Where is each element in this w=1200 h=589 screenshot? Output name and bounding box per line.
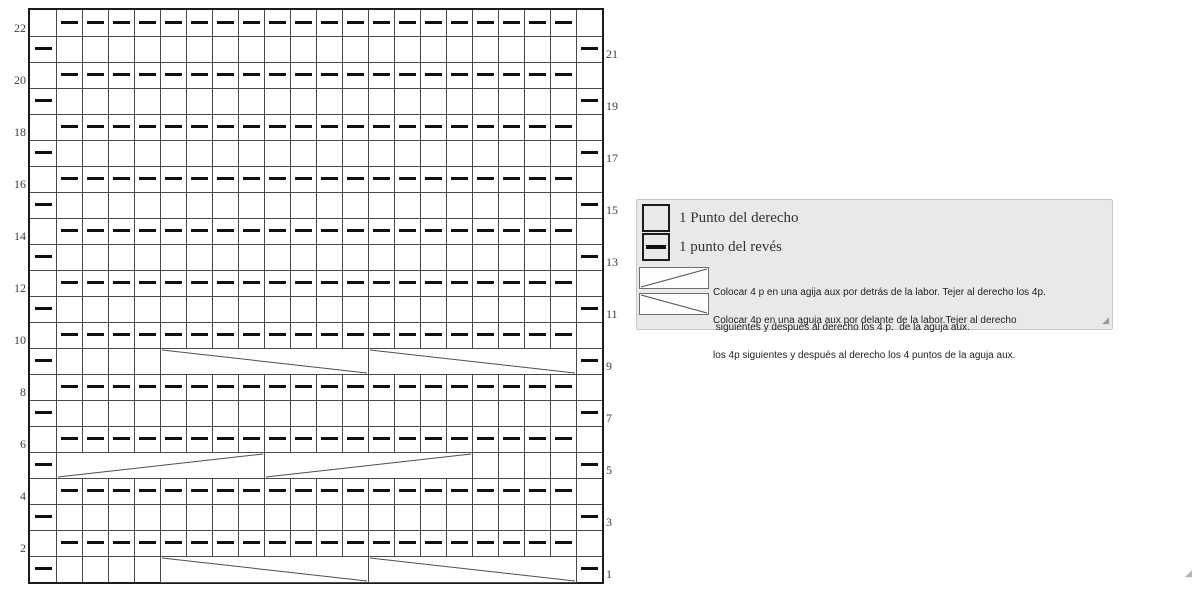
purl-dash — [35, 515, 52, 518]
purl-dash — [139, 541, 156, 544]
row-label-right: 9 — [606, 360, 628, 373]
purl-dash — [373, 281, 390, 284]
purl-dash — [451, 541, 468, 544]
purl-dash — [35, 411, 52, 414]
purl-dash — [555, 125, 572, 128]
purl-dash — [295, 125, 312, 128]
purl-dash — [139, 489, 156, 492]
purl-dash — [139, 281, 156, 284]
purl-dash — [61, 489, 78, 492]
purl-dash — [451, 333, 468, 336]
purl-dash — [451, 281, 468, 284]
purl-dash — [321, 489, 338, 492]
purl-dash — [503, 281, 520, 284]
purl-dash — [347, 125, 364, 128]
purl-dash — [87, 21, 104, 24]
purl-dash — [113, 437, 130, 440]
legend-panel: 1 Punto del derecho 1 punto del revés Co… — [636, 199, 1113, 330]
purl-dash — [555, 385, 572, 388]
row-label-left: 10 — [4, 334, 26, 347]
purl-dash — [399, 541, 416, 544]
purl-dash — [321, 385, 338, 388]
purl-dash — [425, 437, 442, 440]
purl-dash — [243, 281, 260, 284]
purl-dash — [529, 21, 546, 24]
legend-cable-front-line1: Colocar 4p en una aguja aux por delante … — [713, 315, 1017, 327]
purl-dash — [139, 333, 156, 336]
purl-dash — [581, 255, 598, 258]
knit-stitch-icon — [642, 204, 670, 232]
purl-dash — [113, 229, 130, 232]
purl-dash — [477, 437, 494, 440]
purl-dash — [451, 385, 468, 388]
purl-dash — [399, 489, 416, 492]
grid-line-horizontal — [30, 400, 602, 401]
row-label-left: 22 — [4, 22, 26, 35]
purl-dash — [477, 229, 494, 232]
purl-dash — [373, 125, 390, 128]
row-label-left: 18 — [4, 126, 26, 139]
purl-dash — [269, 437, 286, 440]
purl-dash — [425, 21, 442, 24]
purl-dash — [373, 541, 390, 544]
purl-dash — [425, 489, 442, 492]
purl-dash — [425, 281, 442, 284]
purl-dash — [425, 229, 442, 232]
purl-dash — [243, 437, 260, 440]
purl-dash — [477, 177, 494, 180]
purl-dash — [581, 151, 598, 154]
purl-dash — [139, 437, 156, 440]
purl-dash — [347, 229, 364, 232]
purl-dash — [35, 463, 52, 466]
purl-dash — [217, 541, 234, 544]
purl-dash — [295, 177, 312, 180]
purl-dash — [399, 437, 416, 440]
purl-dash — [555, 281, 572, 284]
purl-dash — [529, 437, 546, 440]
purl-dash — [61, 385, 78, 388]
purl-dash — [581, 99, 598, 102]
purl-dash — [269, 177, 286, 180]
purl-dash — [581, 515, 598, 518]
purl-dash — [477, 541, 494, 544]
purl-dash — [243, 333, 260, 336]
purl-dash — [139, 21, 156, 24]
purl-dash — [191, 437, 208, 440]
purl-dash — [87, 125, 104, 128]
grid-line-horizontal — [30, 270, 602, 271]
legend-knit-label: 1 Punto del derecho — [679, 204, 799, 232]
purl-dash — [269, 385, 286, 388]
purl-dash — [321, 177, 338, 180]
purl-dash — [295, 229, 312, 232]
purl-dash — [61, 437, 78, 440]
purl-dash — [373, 385, 390, 388]
purl-dash — [399, 229, 416, 232]
purl-dash — [347, 281, 364, 284]
purl-dash — [165, 21, 182, 24]
purl-dash — [477, 489, 494, 492]
purl-dash — [35, 255, 52, 258]
purl-dash — [477, 385, 494, 388]
purl-dash — [321, 229, 338, 232]
purl-dash — [503, 437, 520, 440]
purl-dash — [451, 73, 468, 76]
purl-dash — [555, 541, 572, 544]
purl-dash — [373, 229, 390, 232]
purl-dash — [477, 125, 494, 128]
purl-dash — [503, 333, 520, 336]
purl-dash — [477, 333, 494, 336]
purl-dash — [503, 229, 520, 232]
purl-dash — [139, 229, 156, 232]
grid-line-horizontal — [30, 426, 602, 427]
row-label-left: 8 — [4, 386, 26, 399]
purl-dash — [399, 21, 416, 24]
purl-dash — [321, 333, 338, 336]
purl-dash — [529, 125, 546, 128]
purl-dash — [399, 125, 416, 128]
knitting-chart-grid — [28, 8, 604, 584]
purl-dash — [61, 73, 78, 76]
purl-dash — [399, 281, 416, 284]
purl-dash — [555, 333, 572, 336]
purl-dash — [451, 177, 468, 180]
cable-front-symbol — [368, 556, 577, 583]
purl-dash — [243, 489, 260, 492]
purl-dash — [503, 125, 520, 128]
grid-line-horizontal — [30, 88, 602, 89]
purl-dash — [373, 489, 390, 492]
purl-dash — [243, 177, 260, 180]
purl-dash — [425, 541, 442, 544]
purl-dash — [191, 73, 208, 76]
purl-dash — [451, 229, 468, 232]
purl-dash — [581, 203, 598, 206]
purl-dash — [217, 73, 234, 76]
purl-dash — [113, 177, 130, 180]
purl-dash — [243, 21, 260, 24]
purl-dash — [113, 125, 130, 128]
purl-stitch-icon — [642, 233, 670, 261]
cable-front-symbol — [160, 556, 369, 583]
purl-dash — [269, 21, 286, 24]
purl-dash — [217, 125, 234, 128]
row-label-left: 16 — [4, 178, 26, 191]
purl-dash — [399, 177, 416, 180]
row-label-right: 15 — [606, 204, 628, 217]
purl-dash — [321, 125, 338, 128]
purl-dash — [529, 229, 546, 232]
purl-dash — [295, 541, 312, 544]
purl-dash — [139, 73, 156, 76]
purl-dash — [646, 245, 666, 249]
purl-dash — [477, 21, 494, 24]
purl-dash — [321, 541, 338, 544]
purl-dash — [347, 333, 364, 336]
knitting-chart: 22201816141210864221191715131197531 — [0, 0, 630, 589]
purl-dash — [191, 333, 208, 336]
row-label-right: 1 — [606, 568, 628, 581]
purl-dash — [295, 489, 312, 492]
purl-dash — [529, 541, 546, 544]
row-label-left: 20 — [4, 74, 26, 87]
cable-front-icon — [639, 293, 709, 315]
purl-dash — [529, 489, 546, 492]
purl-dash — [451, 125, 468, 128]
purl-dash — [87, 229, 104, 232]
purl-dash — [61, 541, 78, 544]
purl-dash — [165, 229, 182, 232]
purl-dash — [191, 125, 208, 128]
purl-dash — [529, 385, 546, 388]
purl-dash — [243, 125, 260, 128]
row-label-left: 2 — [4, 542, 26, 555]
purl-dash — [191, 177, 208, 180]
purl-dash — [581, 47, 598, 50]
purl-dash — [451, 21, 468, 24]
purl-dash — [165, 177, 182, 180]
purl-dash — [165, 437, 182, 440]
purl-dash — [451, 437, 468, 440]
purl-dash — [61, 21, 78, 24]
grid-line-horizontal — [30, 504, 602, 505]
purl-dash — [165, 541, 182, 544]
purl-dash — [555, 73, 572, 76]
purl-dash — [35, 203, 52, 206]
purl-dash — [217, 489, 234, 492]
purl-dash — [503, 73, 520, 76]
purl-dash — [113, 333, 130, 336]
purl-dash — [425, 333, 442, 336]
purl-dash — [269, 489, 286, 492]
purl-dash — [529, 281, 546, 284]
row-label-right: 5 — [606, 464, 628, 477]
legend-purl-label: 1 punto del revés — [679, 233, 782, 261]
purl-dash — [61, 333, 78, 336]
purl-dash — [269, 229, 286, 232]
purl-dash — [191, 229, 208, 232]
purl-dash — [347, 73, 364, 76]
purl-dash — [529, 177, 546, 180]
row-label-right: 11 — [606, 308, 628, 321]
purl-dash — [217, 385, 234, 388]
purl-dash — [425, 385, 442, 388]
purl-dash — [529, 73, 546, 76]
purl-dash — [243, 73, 260, 76]
purl-dash — [191, 489, 208, 492]
grid-line-horizontal — [30, 36, 602, 37]
grid-line-horizontal — [30, 192, 602, 193]
purl-dash — [243, 385, 260, 388]
purl-dash — [165, 125, 182, 128]
purl-dash — [399, 385, 416, 388]
purl-dash — [113, 21, 130, 24]
purl-dash — [165, 385, 182, 388]
purl-dash — [165, 73, 182, 76]
purl-dash — [581, 411, 598, 414]
purl-dash — [87, 177, 104, 180]
row-label-right: 17 — [606, 152, 628, 165]
row-label-left: 6 — [4, 438, 26, 451]
purl-dash — [217, 437, 234, 440]
purl-dash — [35, 359, 52, 362]
purl-dash — [243, 541, 260, 544]
purl-dash — [347, 177, 364, 180]
purl-dash — [477, 73, 494, 76]
purl-dash — [503, 541, 520, 544]
purl-dash — [269, 333, 286, 336]
row-label-right: 3 — [606, 516, 628, 529]
purl-dash — [529, 333, 546, 336]
purl-dash — [35, 307, 52, 310]
purl-dash — [217, 281, 234, 284]
purl-dash — [35, 151, 52, 154]
purl-dash — [217, 229, 234, 232]
purl-dash — [555, 437, 572, 440]
purl-dash — [61, 125, 78, 128]
purl-dash — [373, 437, 390, 440]
purl-dash — [295, 333, 312, 336]
purl-dash — [191, 281, 208, 284]
purl-dash — [399, 73, 416, 76]
purl-dash — [503, 385, 520, 388]
cable-front-symbol — [160, 348, 369, 375]
purl-dash — [373, 21, 390, 24]
purl-dash — [269, 73, 286, 76]
page-resize-grip-icon[interactable]: ◢ — [1185, 570, 1192, 579]
purl-dash — [503, 489, 520, 492]
grid-line-horizontal — [30, 322, 602, 323]
cable-back-icon — [639, 267, 709, 289]
row-label-left: 4 — [4, 490, 26, 503]
purl-dash — [269, 125, 286, 128]
purl-dash — [165, 333, 182, 336]
legend-cable-front-text: Colocar 4p en una aguja aux por delante … — [713, 292, 1017, 384]
purl-dash — [451, 489, 468, 492]
purl-dash — [425, 125, 442, 128]
purl-dash — [399, 333, 416, 336]
purl-dash — [113, 541, 130, 544]
purl-dash — [191, 21, 208, 24]
purl-dash — [477, 281, 494, 284]
cable-back-symbol — [264, 452, 473, 479]
cable-front-symbol — [368, 348, 577, 375]
grid-line-horizontal — [30, 114, 602, 115]
purl-dash — [373, 177, 390, 180]
legend-cable-front-line2: los 4p siguientes y después al derecho l… — [713, 350, 1017, 362]
purl-dash — [113, 281, 130, 284]
purl-dash — [217, 177, 234, 180]
purl-dash — [555, 21, 572, 24]
purl-dash — [113, 385, 130, 388]
purl-dash — [373, 333, 390, 336]
purl-dash — [269, 281, 286, 284]
purl-dash — [139, 125, 156, 128]
purl-dash — [61, 177, 78, 180]
grid-line-horizontal — [30, 244, 602, 245]
purl-dash — [295, 21, 312, 24]
purl-dash — [321, 281, 338, 284]
row-label-left: 12 — [4, 282, 26, 295]
purl-dash — [165, 281, 182, 284]
grid-line-horizontal — [30, 140, 602, 141]
page: { "chart_data": { "type": "knitting-char… — [0, 0, 1200, 589]
purl-dash — [425, 73, 442, 76]
legend-resize-grip-icon[interactable]: ◢ — [1102, 317, 1109, 326]
purl-dash — [35, 47, 52, 50]
purl-dash — [35, 99, 52, 102]
purl-dash — [61, 229, 78, 232]
purl-dash — [87, 489, 104, 492]
purl-dash — [113, 489, 130, 492]
grid-line-horizontal — [30, 218, 602, 219]
purl-dash — [581, 463, 598, 466]
purl-dash — [113, 73, 130, 76]
grid-line-horizontal — [30, 166, 602, 167]
purl-dash — [87, 437, 104, 440]
purl-dash — [295, 73, 312, 76]
purl-dash — [555, 229, 572, 232]
purl-dash — [503, 177, 520, 180]
purl-dash — [347, 437, 364, 440]
row-label-right: 19 — [606, 100, 628, 113]
row-label-right: 13 — [606, 256, 628, 269]
purl-dash — [87, 385, 104, 388]
purl-dash — [321, 437, 338, 440]
purl-dash — [347, 489, 364, 492]
purl-dash — [269, 541, 286, 544]
purl-dash — [555, 177, 572, 180]
purl-dash — [503, 21, 520, 24]
grid-line-horizontal — [30, 296, 602, 297]
purl-dash — [35, 567, 52, 570]
cable-back-symbol — [56, 452, 265, 479]
purl-dash — [217, 333, 234, 336]
purl-dash — [321, 73, 338, 76]
purl-dash — [347, 385, 364, 388]
purl-dash — [347, 21, 364, 24]
row-label-right: 7 — [606, 412, 628, 425]
purl-dash — [581, 359, 598, 362]
row-label-right: 21 — [606, 48, 628, 61]
purl-dash — [191, 541, 208, 544]
purl-dash — [191, 385, 208, 388]
purl-dash — [217, 21, 234, 24]
purl-dash — [139, 385, 156, 388]
purl-dash — [295, 437, 312, 440]
purl-dash — [87, 541, 104, 544]
purl-dash — [373, 73, 390, 76]
row-label-left: 14 — [4, 230, 26, 243]
purl-dash — [243, 229, 260, 232]
grid-line-horizontal — [30, 530, 602, 531]
purl-dash — [321, 21, 338, 24]
purl-dash — [87, 281, 104, 284]
purl-dash — [295, 281, 312, 284]
purl-dash — [165, 489, 182, 492]
purl-dash — [87, 333, 104, 336]
purl-dash — [347, 541, 364, 544]
purl-dash — [61, 281, 78, 284]
purl-dash — [581, 307, 598, 310]
purl-dash — [295, 385, 312, 388]
purl-dash — [555, 489, 572, 492]
purl-dash — [139, 177, 156, 180]
purl-dash — [581, 567, 598, 570]
grid-line-horizontal — [30, 62, 602, 63]
